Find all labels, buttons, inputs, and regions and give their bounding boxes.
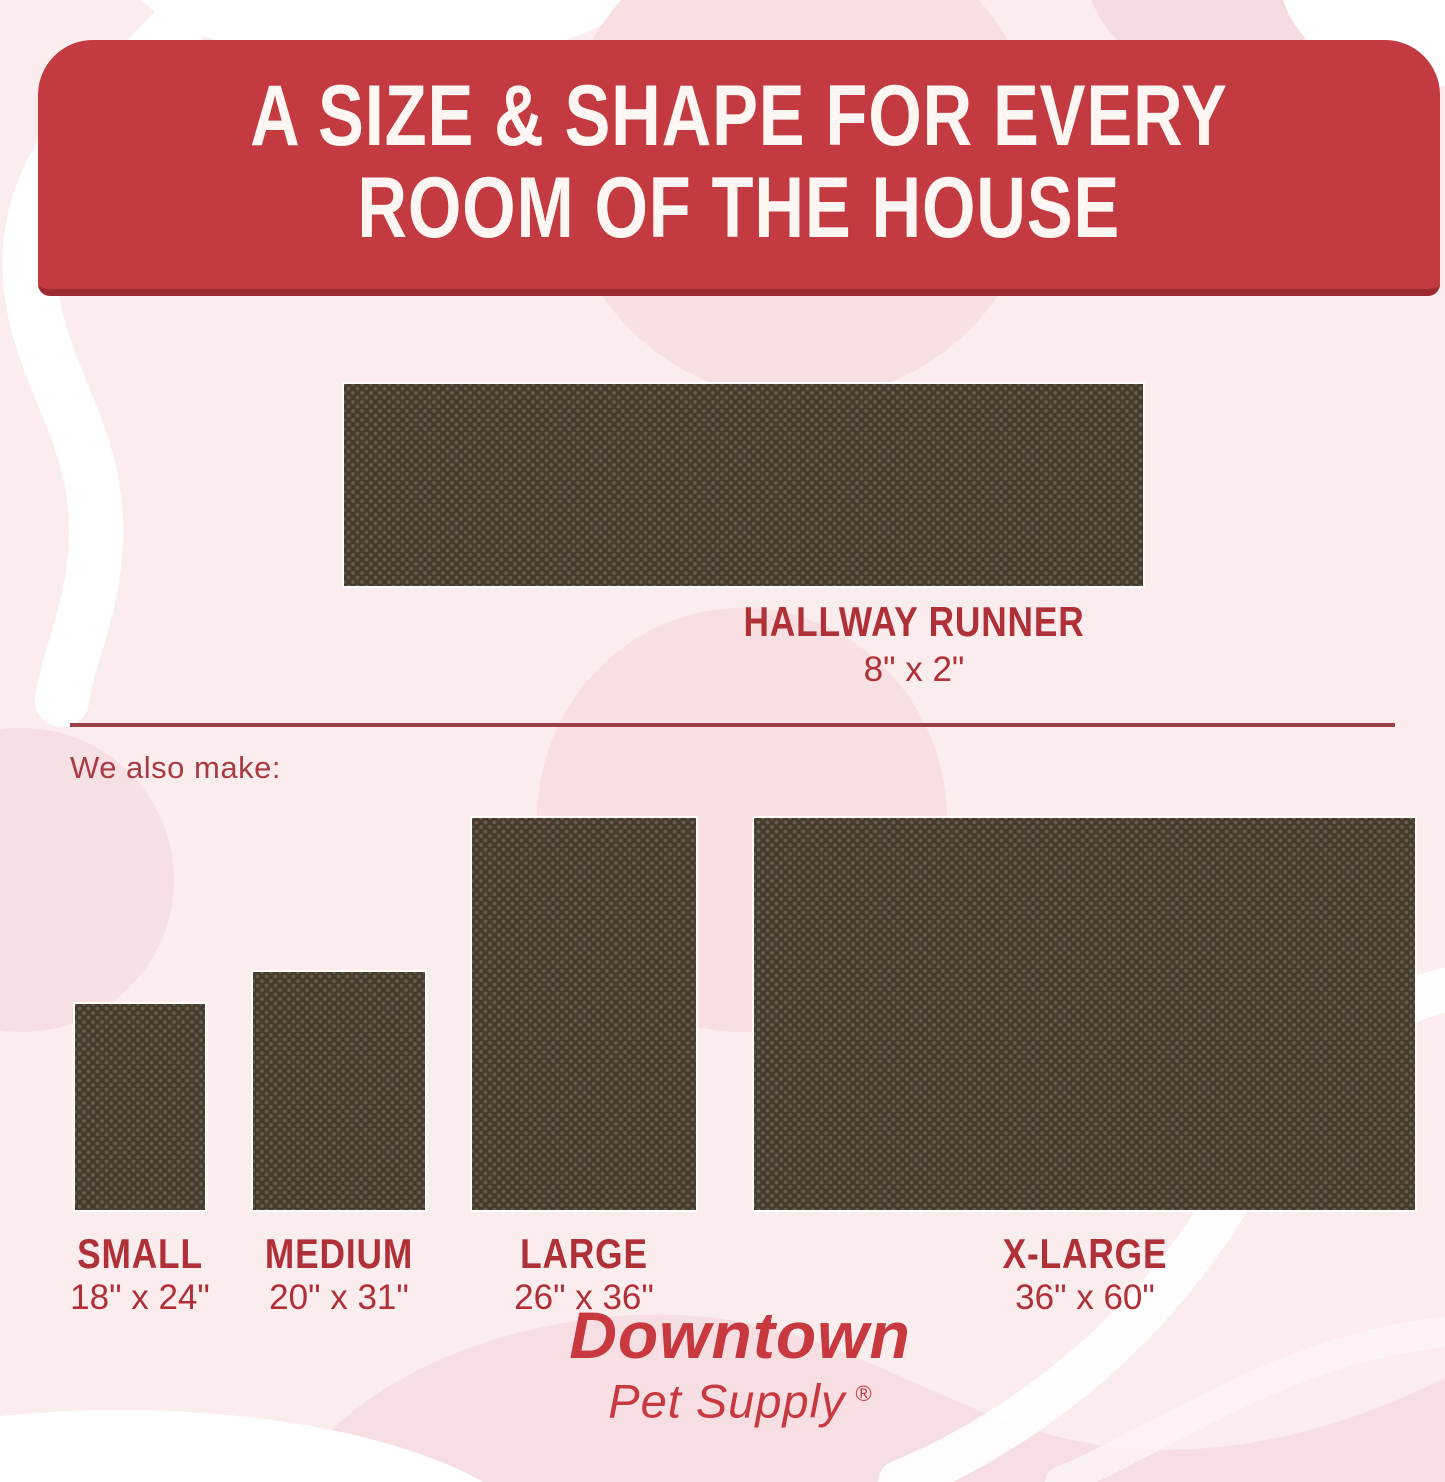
header-banner: A SIZE & SHAPE FOR EVERY ROOM OF THE HOU… [38, 40, 1440, 296]
brand-tagline-text: Pet Supply [608, 1375, 845, 1428]
large-label: LARGE [475, 1232, 693, 1276]
registered-trademark-symbol: ® [856, 1381, 872, 1406]
also-make-label: We also make: [70, 750, 281, 786]
small-label: SMALL [31, 1232, 249, 1276]
hallway-runner-dimensions: 8" x 2" [614, 650, 1214, 690]
brand-logo: Downtown Pet Supply® [440, 1304, 1040, 1428]
brand-tagline: Pet Supply® [440, 1368, 1040, 1428]
medium-mat-swatch [253, 972, 425, 1210]
brand-name: Downtown [440, 1304, 1040, 1366]
header-title-line2: ROOM OF THE HOUSE [358, 162, 1121, 254]
infographic-canvas: A SIZE & SHAPE FOR EVERY ROOM OF THE HOU… [0, 0, 1445, 1482]
small-mat-swatch [75, 1004, 205, 1210]
section-divider [70, 723, 1395, 727]
hallway-runner-label: HALLWAY RUNNER [662, 600, 1166, 644]
large-mat-swatch [472, 818, 696, 1210]
header-title-line1: A SIZE & SHAPE FOR EVERY [250, 70, 1227, 162]
medium-dimensions: 20" x 31" [209, 1278, 469, 1318]
xlarge-mat-swatch [754, 818, 1415, 1210]
medium-label: MEDIUM [230, 1232, 448, 1276]
xlarge-label: X-LARGE [976, 1232, 1194, 1276]
hallway-runner-swatch [344, 384, 1143, 586]
